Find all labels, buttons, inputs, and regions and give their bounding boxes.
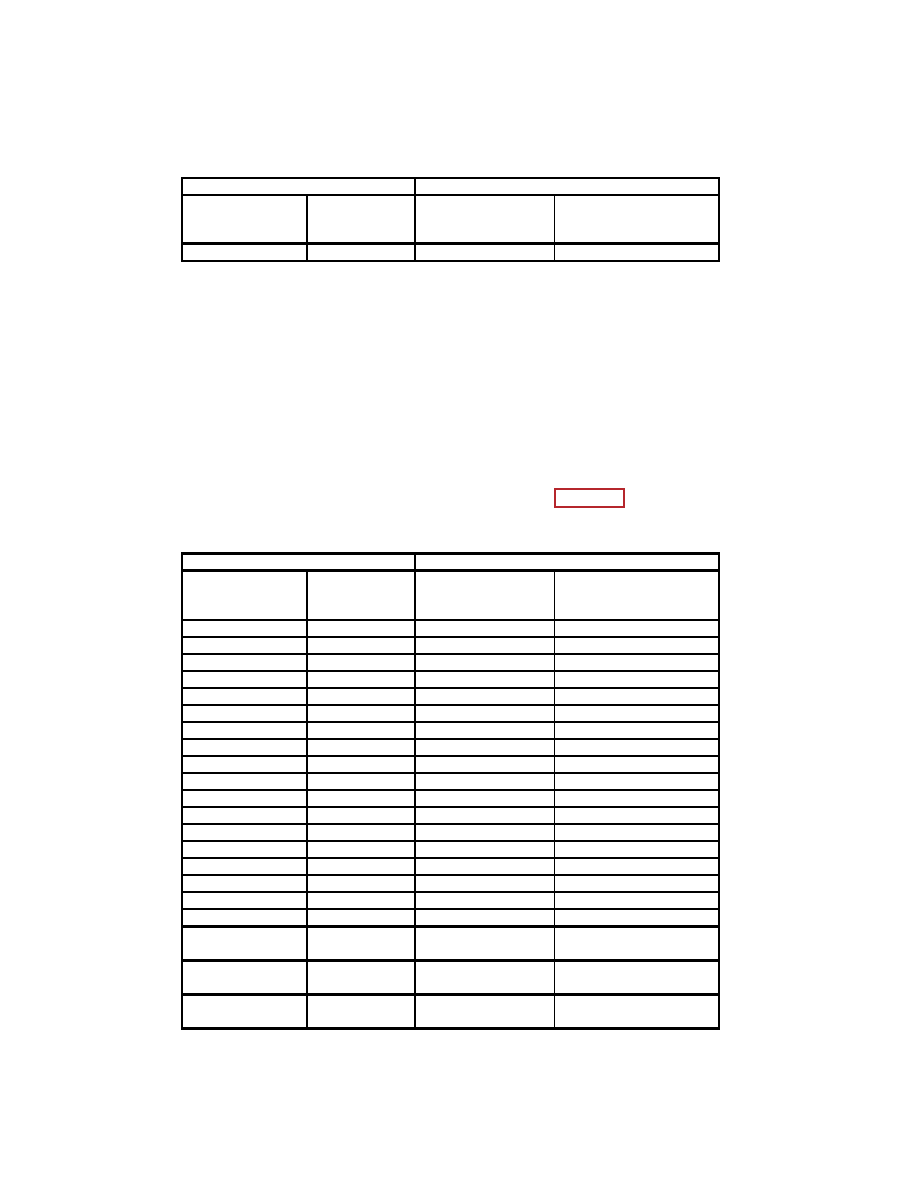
table-cell [415,688,554,705]
table-cell [554,722,719,739]
lower-table-header-row [182,571,719,621]
table-cell [554,841,719,858]
table-cell [307,807,415,824]
table-cell [307,756,415,773]
table-row-tall [182,961,719,995]
table-cell [307,909,415,927]
table-cell [554,875,719,892]
table-cell [307,688,415,705]
table-cell [182,244,307,262]
table-row [182,654,719,671]
table-cell [415,571,554,621]
link-annotation-box[interactable] [554,488,625,508]
table-cell [182,739,307,756]
table-cell [554,892,719,909]
table-row [182,875,719,892]
table-cell [182,858,307,875]
table-cell [415,909,554,927]
table-cell [554,688,719,705]
table-cell [182,995,307,1029]
table-cell [554,858,719,875]
table-cell [307,961,415,995]
header-band-cell-right [415,554,719,571]
table-cell [182,756,307,773]
table-cell [307,244,415,262]
table-row [182,909,719,927]
table-cell [554,961,719,995]
table-cell [554,995,719,1029]
table-row [182,739,719,756]
table-cell [554,571,719,621]
table-cell [415,807,554,824]
table-cell [307,739,415,756]
table-cell [554,909,719,927]
header-band-cell-right [415,178,719,195]
table-row-tall [182,927,719,961]
table-cell [554,195,719,244]
table-cell [182,824,307,841]
table-row [182,824,719,841]
table-cell [307,637,415,654]
table-cell [554,637,719,654]
table-row [182,637,719,654]
table-cell [307,824,415,841]
upper-table-header-row [182,195,719,244]
table-cell [182,195,307,244]
table-cell [415,637,554,654]
document-page [0,0,918,1188]
table-cell [554,705,719,722]
table-cell [182,807,307,824]
table-cell [415,841,554,858]
table-cell [307,841,415,858]
table-cell [415,756,554,773]
table-cell [415,620,554,637]
table-row [182,773,719,790]
table-cell [307,858,415,875]
table-cell [415,739,554,756]
table-cell [415,875,554,892]
table-cell [554,824,719,841]
table-cell [415,773,554,790]
table-cell [182,671,307,688]
table-cell [415,858,554,875]
table-cell [554,244,719,262]
table-cell [554,654,719,671]
upper-table-header-band [182,178,719,195]
table-cell [415,244,554,262]
table-row [182,892,719,909]
upper-table [181,177,720,262]
table-cell [307,671,415,688]
table-cell [307,571,415,621]
table-cell [307,722,415,739]
table-cell [415,995,554,1029]
table-cell [182,571,307,621]
table-row [182,841,719,858]
table-cell [182,927,307,961]
table-cell [415,790,554,807]
table-row [182,722,719,739]
table-cell [182,637,307,654]
table-row [182,671,719,688]
table-cell [182,722,307,739]
table-cell [307,875,415,892]
table-cell [554,739,719,756]
table-cell [415,961,554,995]
table-cell [182,654,307,671]
table-row [182,705,719,722]
table-cell [182,705,307,722]
table-cell [415,824,554,841]
table-cell [182,688,307,705]
header-band-cell-left [182,178,415,195]
table-cell [182,790,307,807]
table-row [182,244,719,262]
lower-table [181,552,720,1030]
table-cell [182,841,307,858]
table-row [182,790,719,807]
table-cell [415,671,554,688]
table-cell [182,909,307,927]
table-cell [182,620,307,637]
table-row [182,756,719,773]
table-cell [307,620,415,637]
table-cell [182,773,307,790]
table-row-tall [182,995,719,1029]
table-cell [554,807,719,824]
table-cell [307,773,415,790]
table-row [182,620,719,637]
table-cell [554,790,719,807]
table-cell [182,961,307,995]
table-cell [415,705,554,722]
table-cell [415,722,554,739]
table-cell [307,195,415,244]
table-cell [554,773,719,790]
table-cell [182,892,307,909]
table-cell [415,892,554,909]
table-cell [307,654,415,671]
table-cell [554,756,719,773]
table-cell [307,892,415,909]
table-cell [554,671,719,688]
table-cell [307,927,415,961]
table-cell [307,995,415,1029]
table-cell [415,654,554,671]
table-cell [554,620,719,637]
lower-table-header-band [182,554,719,571]
table-row [182,688,719,705]
table-cell [307,705,415,722]
table-cell [554,927,719,961]
table-row [182,807,719,824]
table-cell [307,790,415,807]
table-cell [415,195,554,244]
header-band-cell-left [182,554,415,571]
table-cell [182,875,307,892]
table-row [182,858,719,875]
table-cell [415,927,554,961]
